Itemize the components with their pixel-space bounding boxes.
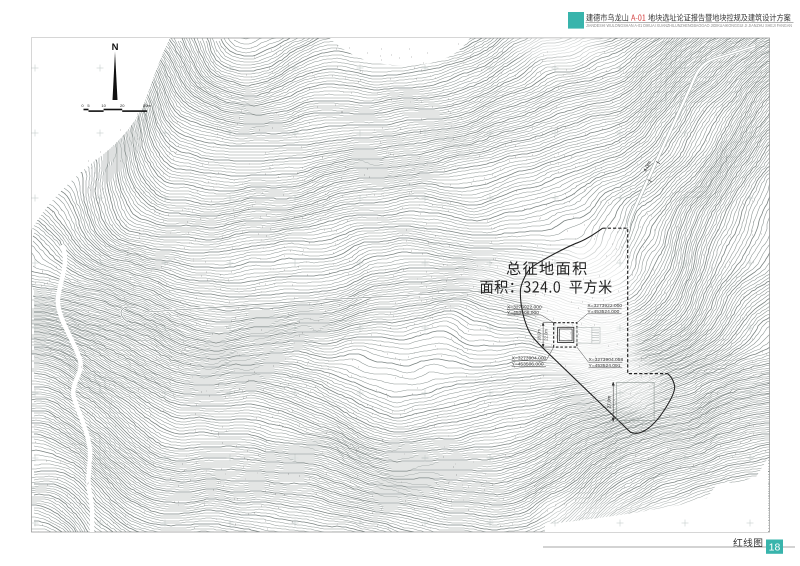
svg-text:27.0m: 27.0m [607, 395, 612, 408]
svg-text:10: 10 [101, 103, 106, 108]
svg-text:22.0m: 22.0m [544, 329, 549, 341]
svg-text:N: N [112, 42, 119, 53]
svg-text:20: 20 [120, 103, 125, 108]
svg-text:18: 18 [769, 542, 781, 554]
svg-text:JIANDESHI WULONGSHAN A-01 DIKU: JIANDESHI WULONGSHAN A-01 DIKUAI XUANZHI… [586, 23, 792, 28]
svg-text:18.0m: 18.0m [537, 329, 542, 341]
svg-text:50m: 50m [143, 103, 151, 108]
